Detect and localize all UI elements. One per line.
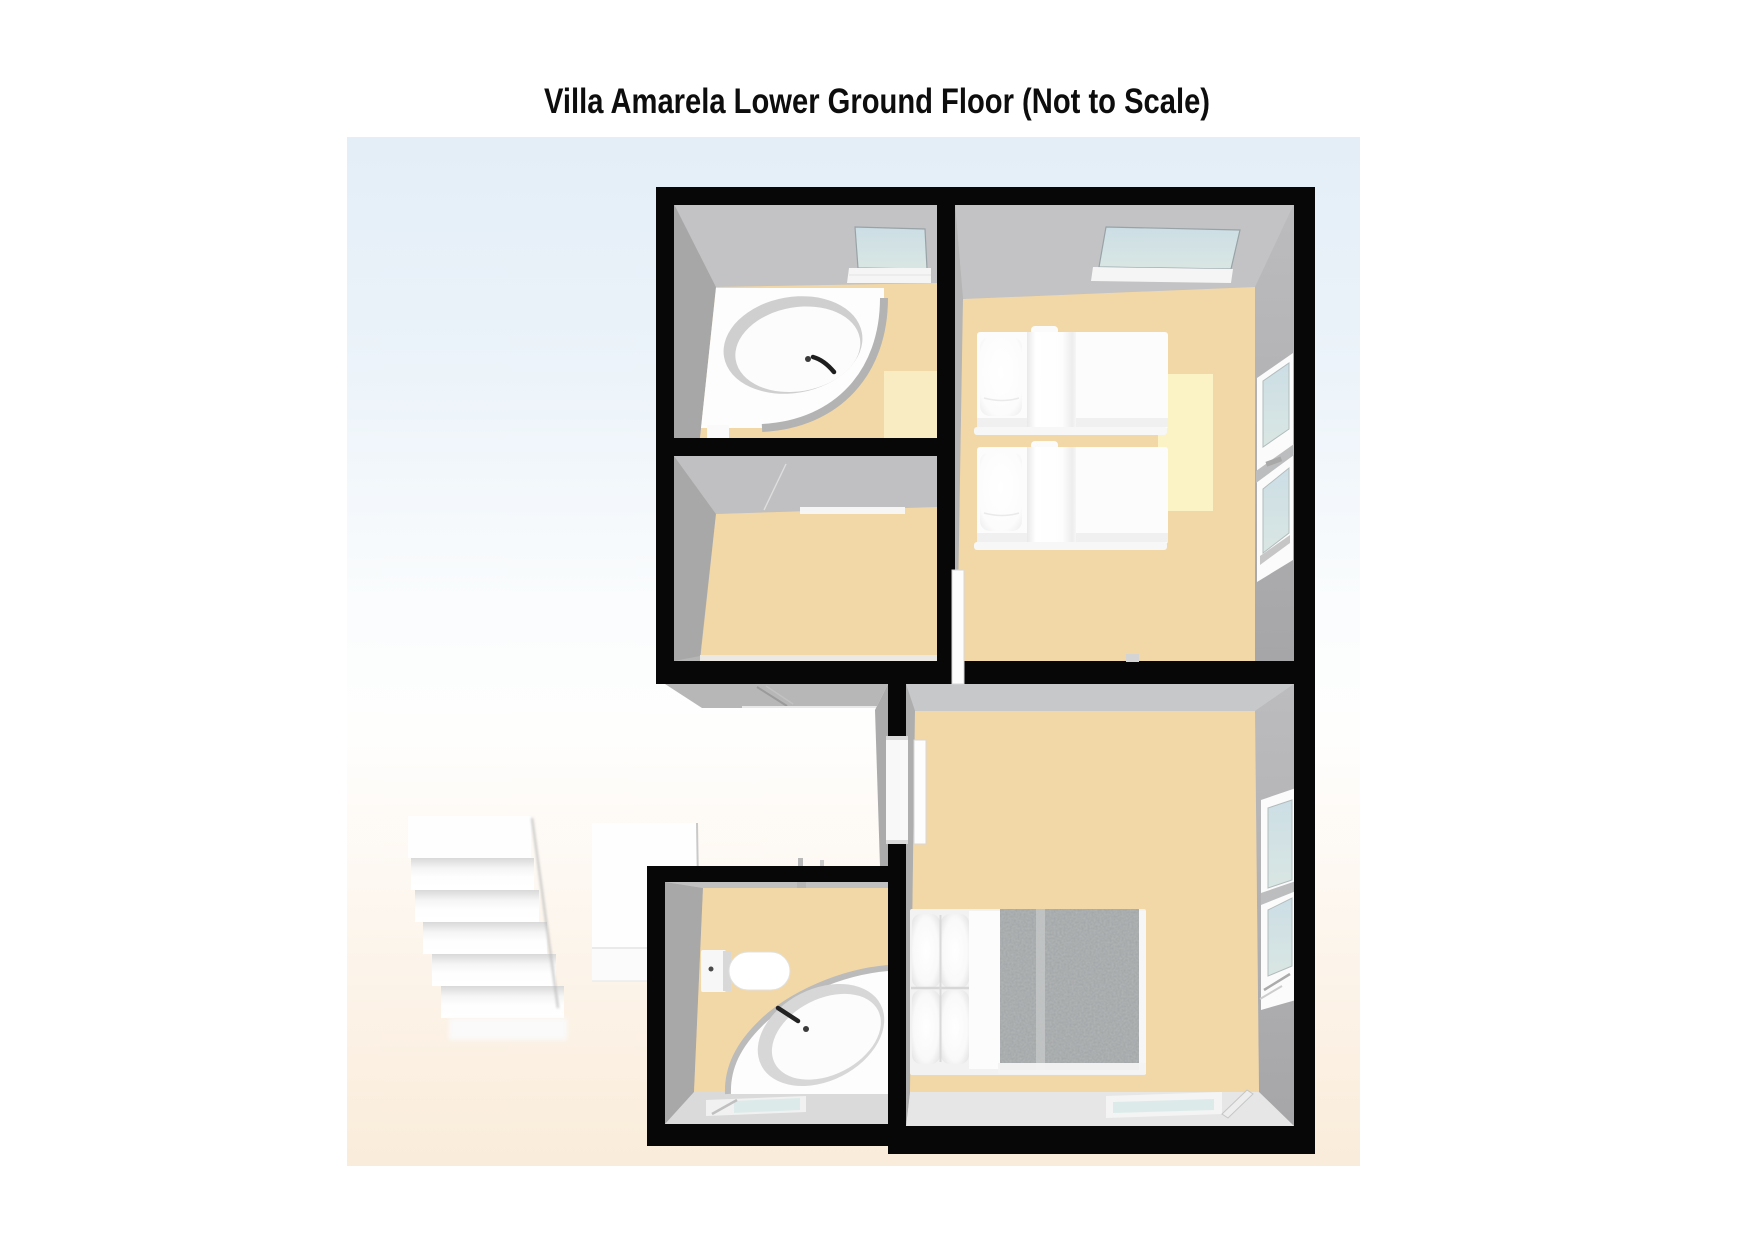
svg-text:Villa Amarela Lower Ground Flo: Villa Amarela Lower Ground Floor (Not to… <box>544 82 1210 121</box>
